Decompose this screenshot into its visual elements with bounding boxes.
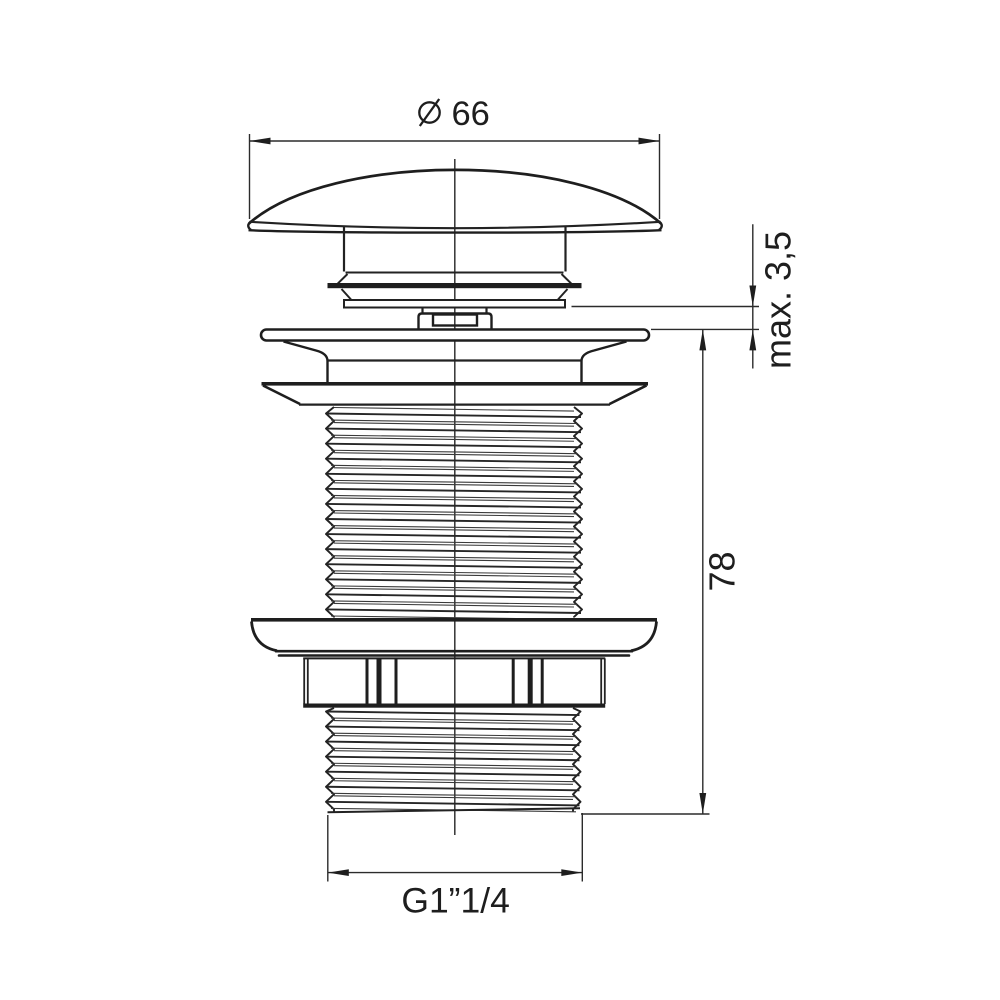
svg-text:max. 3,5: max. 3,5 bbox=[758, 231, 799, 369]
svg-text:78: 78 bbox=[702, 551, 743, 591]
svg-text:G1”1/4: G1”1/4 bbox=[401, 881, 510, 921]
svg-text:66: 66 bbox=[452, 95, 490, 133]
